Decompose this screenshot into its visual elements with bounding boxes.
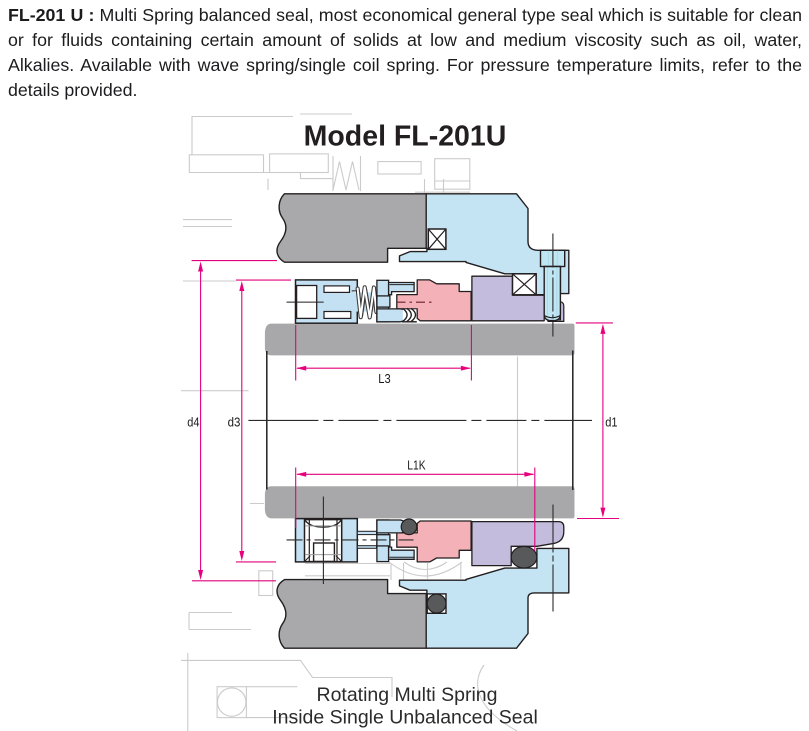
svg-text:L3: L3 [378, 371, 390, 386]
svg-text:L1K: L1K [407, 457, 426, 472]
svg-text:d4: d4 [187, 414, 199, 429]
svg-text:Model FL-201U: Model FL-201U [304, 121, 507, 153]
svg-text:Rotating Multi Spring: Rotating Multi Spring [316, 684, 497, 706]
svg-text:d3: d3 [228, 414, 241, 429]
svg-text:Inside Single Unbalanced Seal: Inside Single Unbalanced Seal [272, 707, 538, 729]
svg-text:d1: d1 [605, 414, 617, 429]
